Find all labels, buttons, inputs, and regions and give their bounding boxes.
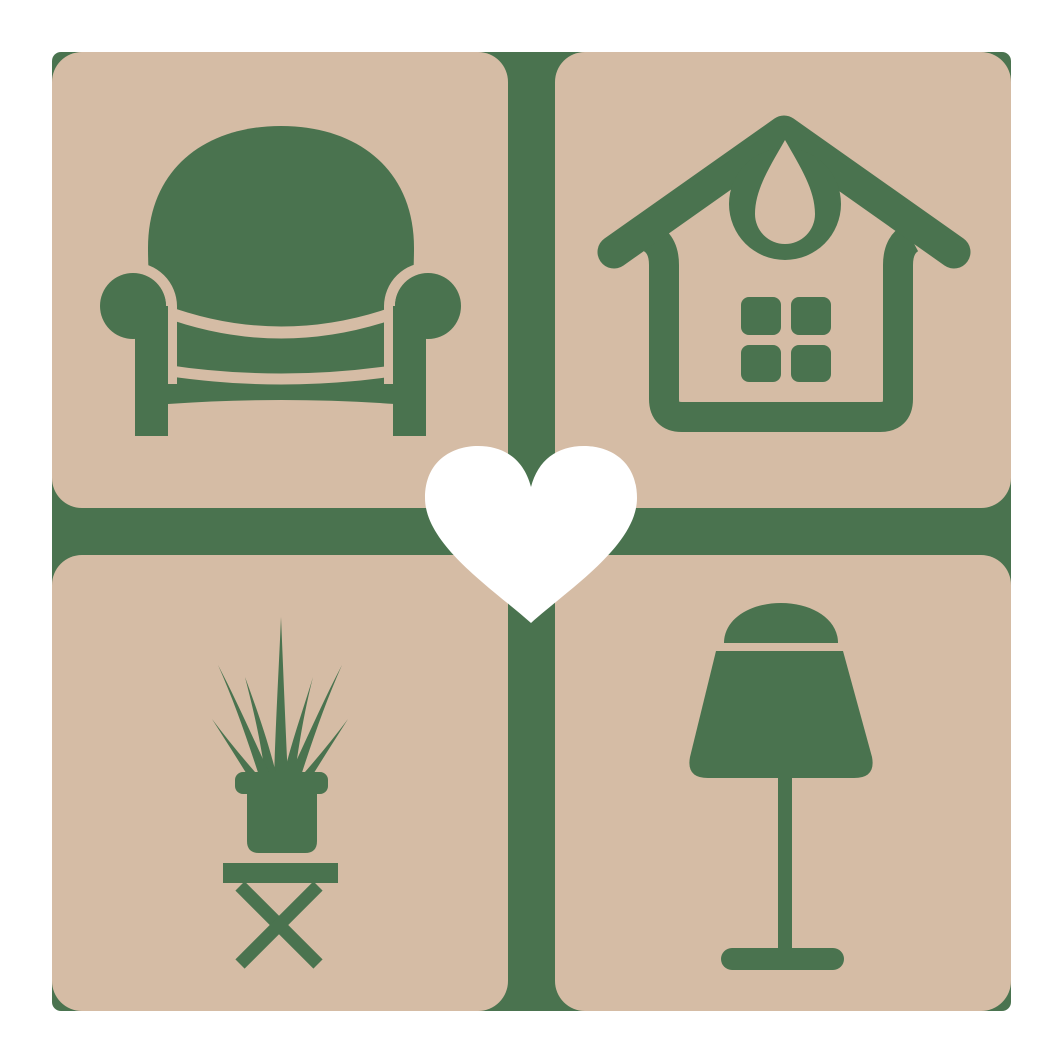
- logo-tile-plant: [52, 555, 508, 1011]
- logo-tile-lamp: [555, 555, 1011, 1011]
- armchair-icon: [52, 52, 508, 508]
- house-icon: [555, 52, 1011, 508]
- logo-tile-house: [555, 52, 1011, 508]
- table-lamp-icon: [555, 555, 1011, 1011]
- logo-canvas: [0, 0, 1063, 1063]
- logo-tile-armchair: [52, 52, 508, 508]
- potted-plant-icon: [52, 555, 508, 1011]
